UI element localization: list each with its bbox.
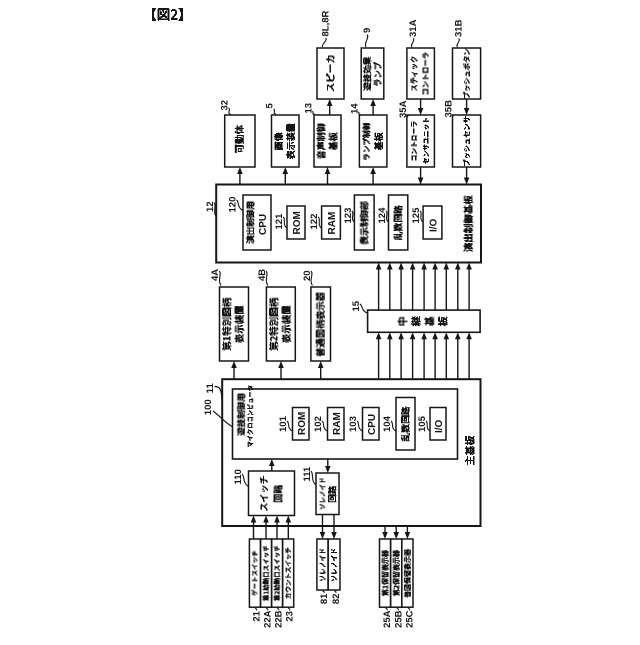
svg-text:35A: 35A bbox=[398, 100, 409, 118]
svg-text:25A: 25A bbox=[382, 610, 393, 628]
svg-text:25B: 25B bbox=[393, 610, 404, 628]
svg-text:21: 21 bbox=[252, 610, 263, 621]
svg-text:100: 100 bbox=[203, 399, 214, 415]
svg-text:31A: 31A bbox=[408, 19, 419, 37]
svg-text:I/O: I/O bbox=[429, 218, 440, 232]
svg-text:25C: 25C bbox=[405, 610, 416, 628]
svg-text:101: 101 bbox=[278, 415, 289, 432]
svg-text:81: 81 bbox=[319, 593, 330, 604]
svg-text:104: 104 bbox=[382, 415, 393, 432]
svg-text:9: 9 bbox=[362, 28, 373, 33]
svg-text:105: 105 bbox=[417, 415, 428, 432]
svg-text:5: 5 bbox=[265, 103, 276, 109]
svg-text:23: 23 bbox=[285, 611, 296, 622]
svg-text:11: 11 bbox=[205, 383, 216, 394]
svg-text:CPU: CPU bbox=[258, 214, 269, 235]
svg-text:22B: 22B bbox=[274, 610, 285, 628]
svg-text:122: 122 bbox=[309, 214, 320, 230]
svg-text:120: 120 bbox=[227, 197, 238, 213]
svg-text:I/O: I/O bbox=[434, 419, 445, 433]
svg-text:8L,8R: 8L,8R bbox=[321, 10, 332, 36]
svg-text:121: 121 bbox=[274, 213, 285, 230]
svg-text:CPU: CPU bbox=[367, 414, 378, 435]
svg-text:15: 15 bbox=[351, 300, 362, 311]
svg-text:102: 102 bbox=[313, 416, 324, 432]
svg-text:111: 111 bbox=[302, 466, 313, 482]
svg-text:103: 103 bbox=[348, 416, 359, 432]
svg-text:110: 110 bbox=[233, 469, 244, 484]
svg-text:22A: 22A bbox=[263, 610, 274, 628]
svg-text:RAM: RAM bbox=[332, 412, 343, 435]
svg-text:ROM: ROM bbox=[292, 211, 303, 234]
svg-text:31B: 31B bbox=[454, 19, 465, 37]
svg-text:ROM: ROM bbox=[297, 412, 308, 435]
svg-text:82: 82 bbox=[331, 594, 342, 605]
svg-text:RAM: RAM bbox=[327, 212, 338, 235]
svg-text:35B: 35B bbox=[444, 100, 455, 118]
svg-text:125: 125 bbox=[411, 207, 422, 224]
